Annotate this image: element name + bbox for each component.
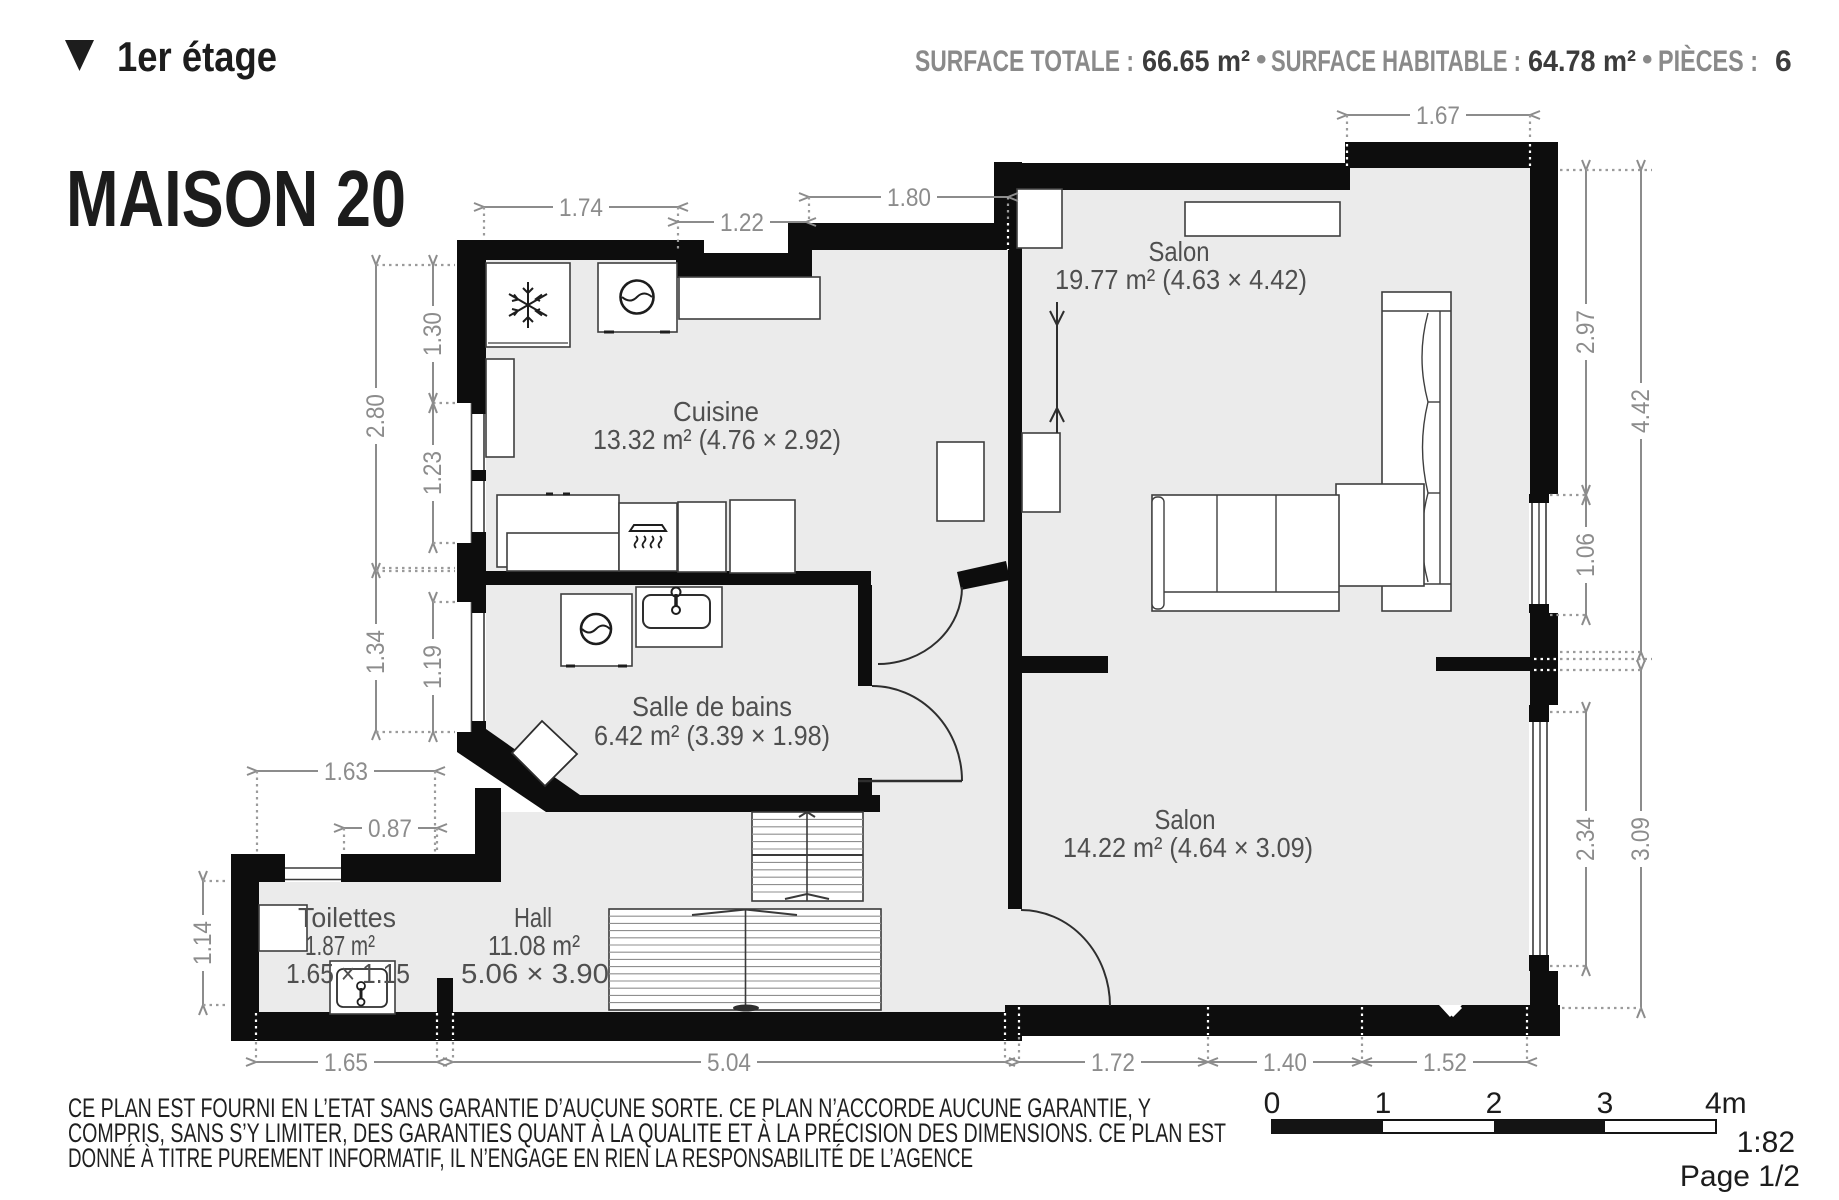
svg-text:1.40: 1.40	[1263, 1049, 1307, 1077]
svg-text:SURFACE HABITABLE :: SURFACE HABITABLE :	[1271, 45, 1521, 78]
svg-text:2.80: 2.80	[362, 394, 390, 438]
svg-text:Toilettes: Toilettes	[298, 902, 396, 933]
svg-text:1.14: 1.14	[189, 921, 217, 965]
svg-text:1.63: 1.63	[324, 758, 368, 786]
svg-text:1:82: 1:82	[1737, 1126, 1795, 1159]
svg-text:0: 0	[1264, 1087, 1281, 1120]
svg-text:1er étage: 1er étage	[117, 33, 277, 80]
svg-text:PIÈCES :: PIÈCES :	[1658, 44, 1758, 78]
svg-text:1.23: 1.23	[419, 451, 447, 495]
svg-text:1.52: 1.52	[1423, 1049, 1467, 1077]
svg-text:3.09: 3.09	[1627, 817, 1655, 861]
svg-text:1.22: 1.22	[720, 209, 764, 237]
svg-text:1.65 × 1.15: 1.65 × 1.15	[286, 958, 410, 989]
svg-text:11.08 m²: 11.08 m²	[488, 930, 580, 961]
svg-text:Salon: Salon	[1155, 804, 1216, 835]
svg-text:2.97: 2.97	[1572, 310, 1600, 354]
svg-text:1.67: 1.67	[1416, 102, 1460, 130]
svg-text:19.77 m² (4.63 × 4.42): 19.77 m² (4.63 × 4.42)	[1055, 264, 1307, 295]
svg-text:4.42: 4.42	[1627, 389, 1655, 433]
svg-text:1.87 m²: 1.87 m²	[305, 930, 375, 961]
svg-text:14.22 m² (4.64 × 3.09): 14.22 m² (4.64 × 3.09)	[1063, 832, 1313, 863]
svg-text:0.87: 0.87	[368, 815, 412, 843]
svg-text:5.04: 5.04	[707, 1049, 751, 1077]
svg-text:•: •	[1642, 43, 1653, 76]
svg-text:Salle de bains: Salle de bains	[632, 691, 792, 722]
svg-text:2.34: 2.34	[1572, 817, 1600, 861]
svg-text:2: 2	[1486, 1087, 1503, 1120]
svg-text:5.06 × 3.90: 5.06 × 3.90	[461, 958, 609, 989]
svg-text:1.19: 1.19	[419, 645, 447, 689]
svg-text:1.30: 1.30	[419, 312, 447, 356]
svg-text:1.06: 1.06	[1572, 533, 1600, 577]
svg-text:3: 3	[1597, 1087, 1614, 1120]
svg-text:1: 1	[1375, 1087, 1392, 1120]
svg-text:6.42 m² (3.39 × 1.98): 6.42 m² (3.39 × 1.98)	[594, 720, 830, 751]
svg-text:SURFACE TOTALE :: SURFACE TOTALE :	[915, 45, 1134, 78]
svg-text:DONNÉ À TITRE PUREMENT INFORMA: DONNÉ À TITRE PUREMENT INFORMATIF, IL N’…	[68, 1143, 973, 1173]
svg-text:1.34: 1.34	[362, 630, 390, 674]
svg-text:MAISON 20: MAISON 20	[66, 154, 406, 243]
svg-text:1.80: 1.80	[887, 184, 931, 212]
svg-text:4m: 4m	[1705, 1087, 1747, 1120]
svg-text:Hall: Hall	[514, 902, 552, 933]
svg-text:•: •	[1256, 43, 1267, 76]
svg-text:13.32 m² (4.76 × 2.92): 13.32 m² (4.76 × 2.92)	[593, 424, 841, 455]
svg-text:1.65: 1.65	[324, 1049, 368, 1077]
svg-text:Cuisine: Cuisine	[673, 396, 759, 427]
svg-text:1.74: 1.74	[559, 194, 603, 222]
svg-text:64.78 m²: 64.78 m²	[1528, 45, 1636, 78]
svg-text:1.72: 1.72	[1091, 1049, 1135, 1077]
svg-text:Salon: Salon	[1149, 236, 1210, 267]
svg-text:Page 1/2: Page 1/2	[1680, 1160, 1800, 1193]
svg-text:6: 6	[1775, 45, 1792, 78]
svg-text:66.65 m²: 66.65 m²	[1142, 45, 1250, 78]
